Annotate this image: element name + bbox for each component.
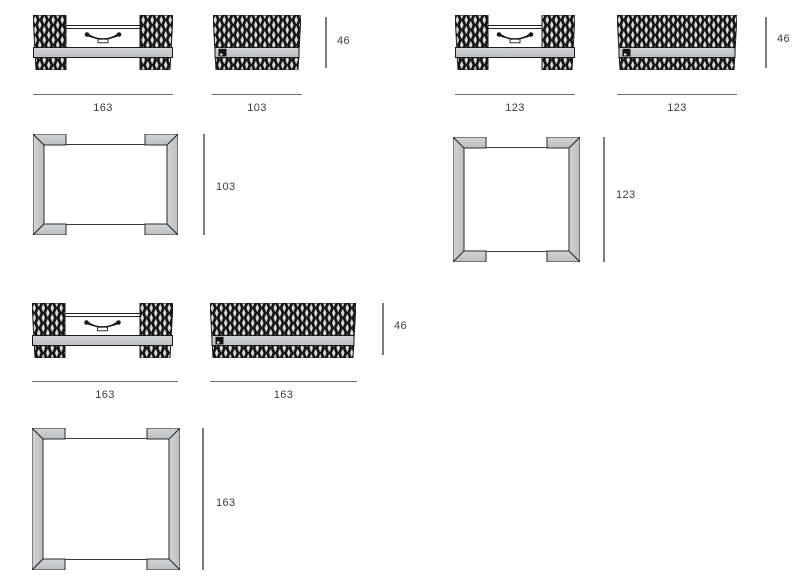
top-view-163x163 — [32, 428, 180, 570]
top-depth-dimension-line — [202, 428, 204, 570]
woven-pillar-right — [140, 303, 173, 358]
front-view-163 — [32, 303, 173, 358]
side-depth-dimension-label: 163 — [210, 389, 357, 402]
woven-pillar-left — [32, 303, 65, 358]
top-depth-dimension-label: 163 — [216, 497, 236, 510]
side-depth-dimension-line — [210, 381, 357, 382]
frame-band — [212, 336, 354, 346]
diagram-group-163x163: 46 163 163 163 — [0, 0, 803, 584]
woven-block — [210, 303, 356, 358]
side-rail-left — [32, 428, 43, 570]
front-width-dimension-label: 163 — [32, 389, 178, 402]
height-dimension-line — [382, 303, 384, 355]
side-view-163 — [210, 303, 356, 358]
frame-band — [33, 336, 173, 346]
height-dimension-label: 46 — [394, 320, 407, 333]
drawer-handle — [84, 320, 121, 331]
side-rail-right — [169, 428, 180, 570]
band-buckle-highlight — [217, 342, 220, 344]
front-width-dimension-line — [32, 381, 178, 382]
dimension-diagram: 46 163 103 103 — [0, 0, 803, 584]
